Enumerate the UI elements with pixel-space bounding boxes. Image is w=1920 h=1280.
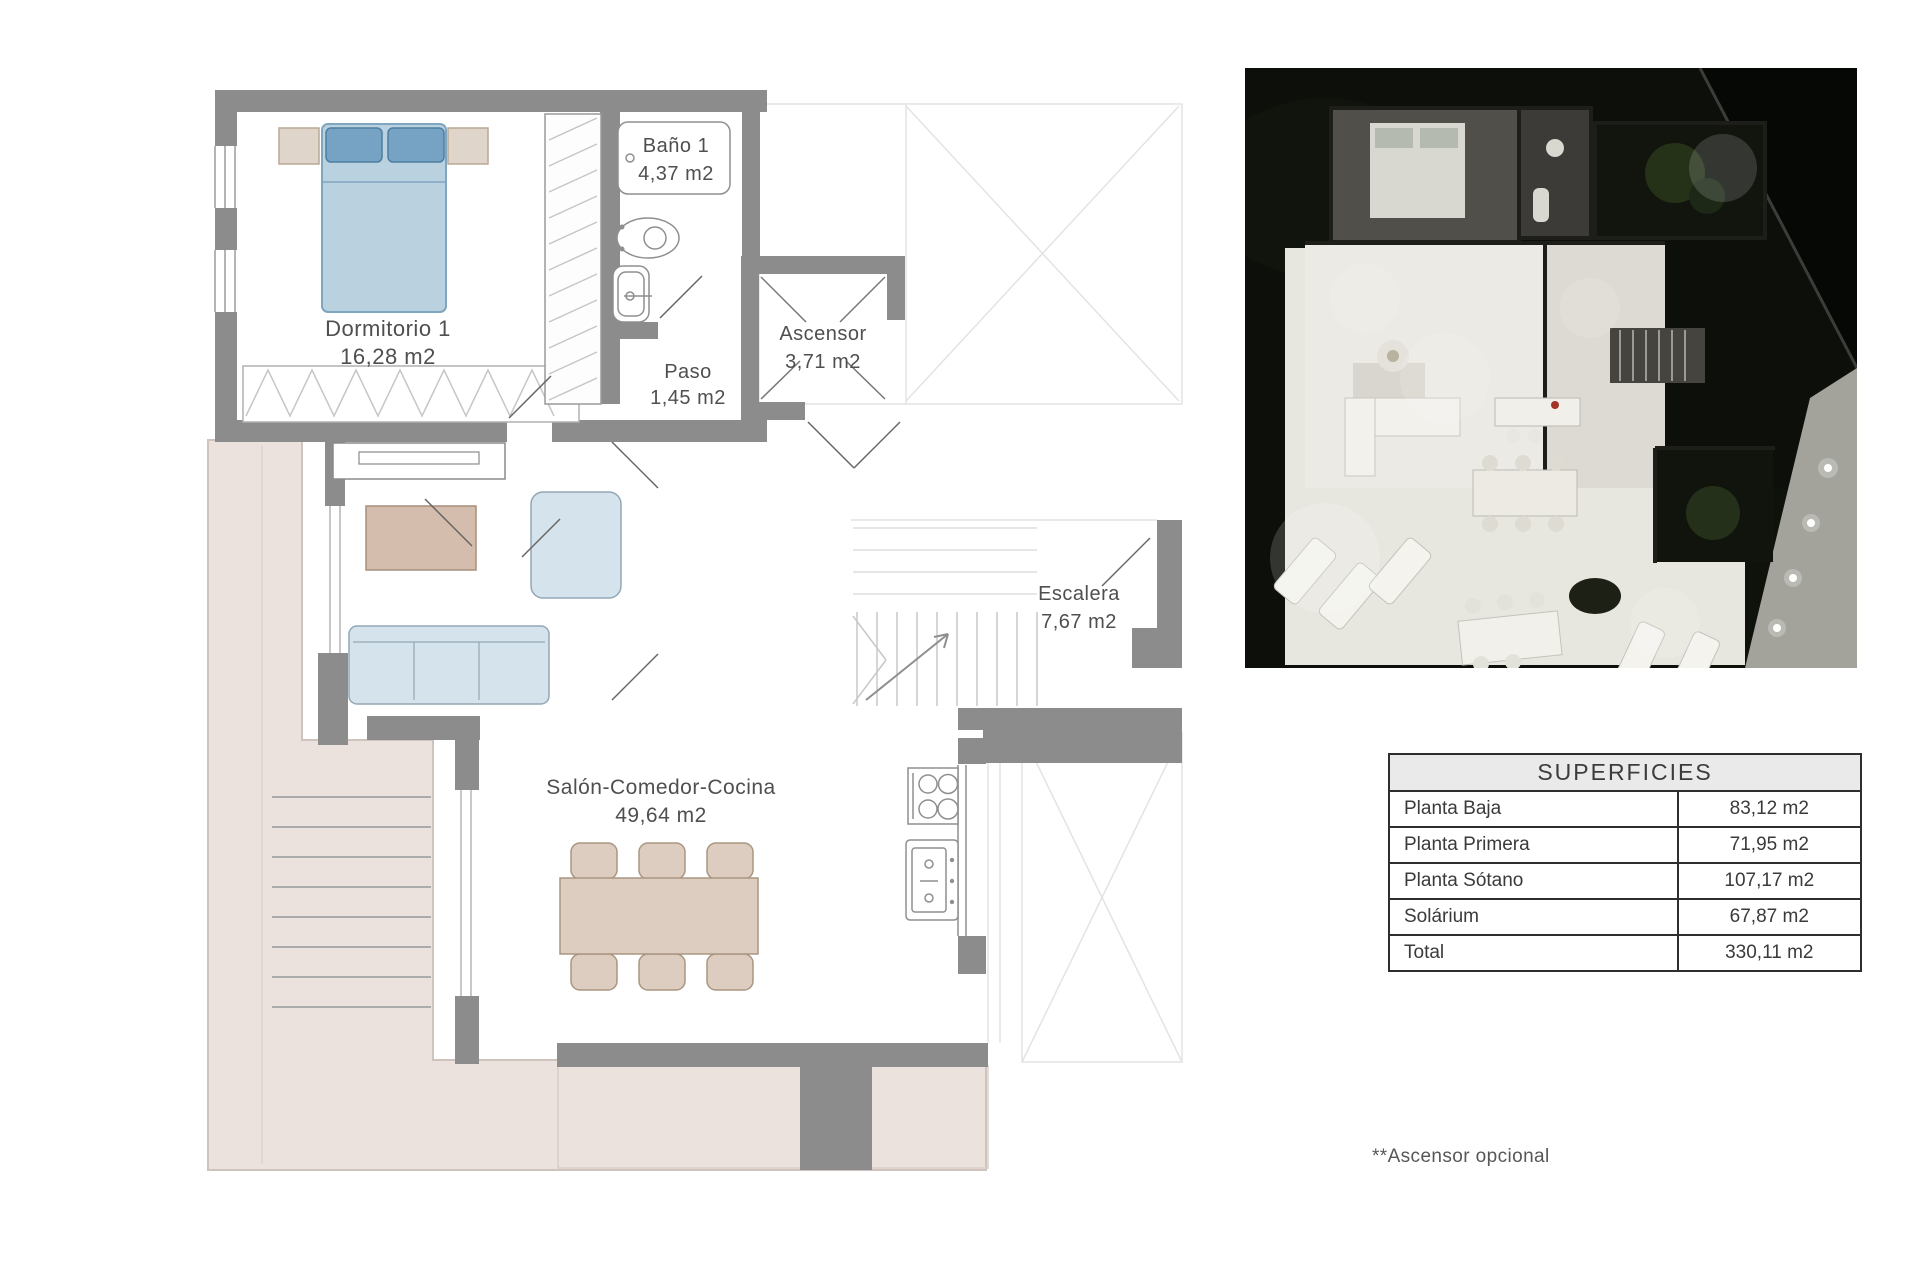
chair xyxy=(639,843,685,879)
room-area-dormitorio: 16,28 m2 xyxy=(340,344,436,369)
room-area-escalera: 7,67 m2 xyxy=(1041,611,1117,633)
closet xyxy=(243,366,579,422)
chair xyxy=(571,843,617,879)
nightstand-left xyxy=(279,128,319,164)
floorplan: Dormitorio 1 16,28 m2 Baño 1 4,37 m2 Asc… xyxy=(0,0,1220,1280)
dining-set xyxy=(560,843,758,990)
row-value: 330,11 m2 xyxy=(1679,936,1860,970)
row-label: Planta Primera xyxy=(1390,828,1679,862)
row-value: 83,12 m2 xyxy=(1679,792,1860,826)
chair xyxy=(707,843,753,879)
chair xyxy=(707,954,753,990)
row-label: Total xyxy=(1390,936,1679,970)
row-label: Planta Sótano xyxy=(1390,864,1679,898)
wardrobe xyxy=(545,114,601,404)
table-row: Planta Primera 71,95 m2 xyxy=(1390,828,1860,864)
stairs xyxy=(853,528,1037,706)
footnote-ascensor-opcional: **Ascensor opcional xyxy=(1372,1146,1550,1168)
table-row: Planta Baja 83,12 m2 xyxy=(1390,792,1860,828)
chair xyxy=(571,954,617,990)
room-area-ascensor: 3,71 m2 xyxy=(785,351,861,373)
room-label-escalera: Escalera xyxy=(1038,583,1120,605)
coffee-table xyxy=(366,506,476,570)
bedroom-furniture xyxy=(279,124,488,312)
page: Dormitorio 1 16,28 m2 Baño 1 4,37 m2 Asc… xyxy=(0,0,1920,1280)
table-row: Planta Sótano 107,17 m2 xyxy=(1390,864,1860,900)
stairs-arrow xyxy=(866,634,948,700)
kitchen xyxy=(906,765,966,936)
room-label-dormitorio: Dormitorio 1 xyxy=(325,316,451,341)
armchair xyxy=(531,492,621,598)
row-label: Planta Baja xyxy=(1390,792,1679,826)
dining-table xyxy=(560,878,758,954)
row-value: 67,87 m2 xyxy=(1679,900,1860,934)
table-row: Solárium 67,87 m2 xyxy=(1390,900,1860,936)
render-3d-panel xyxy=(1245,68,1857,668)
row-label: Solárium xyxy=(1390,900,1679,934)
table-row: Total 330,11 m2 xyxy=(1390,936,1860,970)
row-value: 107,17 m2 xyxy=(1679,864,1860,898)
room-area-bano: 4,37 m2 xyxy=(638,163,714,185)
superficies-table: SUPERFICIES Planta Baja 83,12 m2 Planta … xyxy=(1388,753,1862,972)
room-area-paso: 1,45 m2 xyxy=(650,387,726,409)
superficies-table-title: SUPERFICIES xyxy=(1390,755,1860,792)
pillow-right xyxy=(388,128,444,162)
render-3d-image xyxy=(1245,68,1857,668)
nightstand-right xyxy=(448,128,488,164)
room-label-salon: Salón-Comedor-Cocina xyxy=(546,776,775,799)
row-value: 71,95 m2 xyxy=(1679,828,1860,862)
room-label-paso: Paso xyxy=(664,361,712,383)
room-label-bano: Baño 1 xyxy=(643,135,709,157)
sofa xyxy=(349,626,549,704)
pillow-left xyxy=(326,128,382,162)
room-label-ascensor: Ascensor xyxy=(779,323,866,345)
toilet xyxy=(617,218,679,258)
living-furniture xyxy=(333,443,621,704)
chair xyxy=(639,954,685,990)
room-area-salon: 49,64 m2 xyxy=(615,804,707,827)
